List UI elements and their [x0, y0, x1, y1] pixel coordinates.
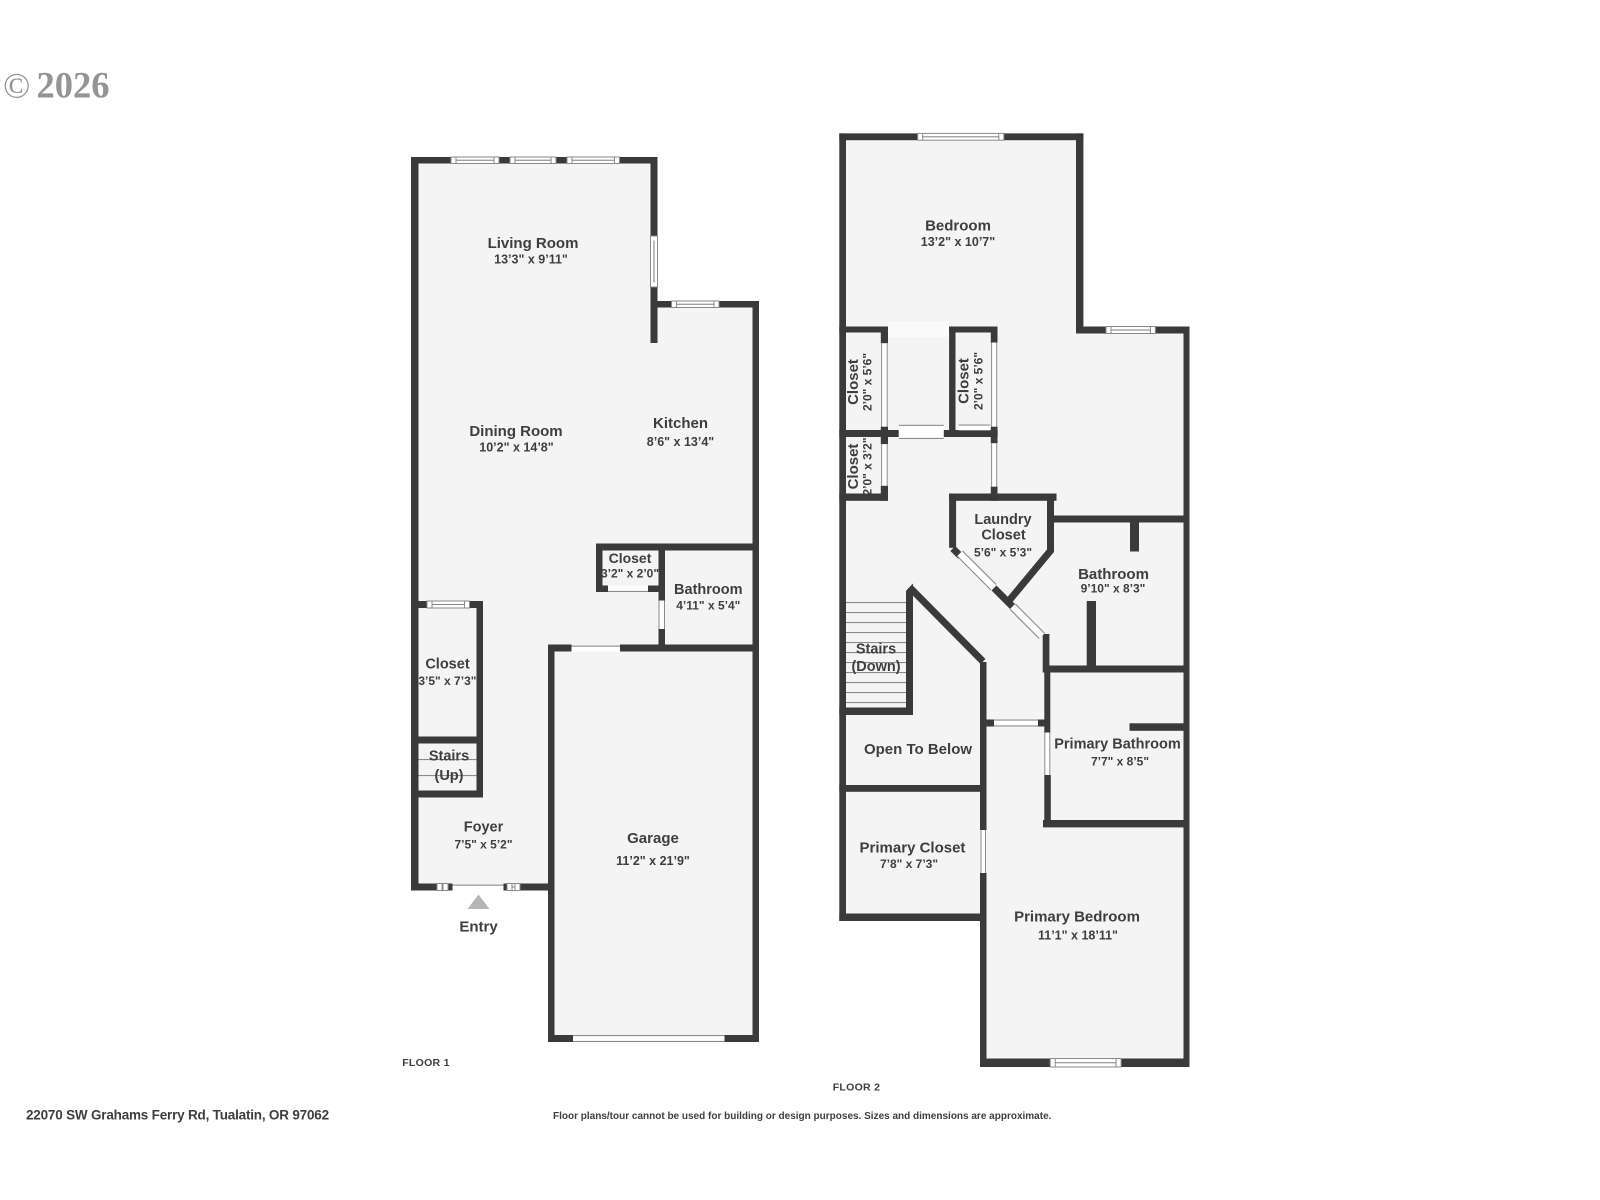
svg-text:11’1" x 18’11": 11’1" x 18’11" [1038, 929, 1118, 943]
svg-text:2’0" x 5’6": 2’0" x 5’6" [972, 352, 986, 410]
svg-text:Kitchen: Kitchen [653, 415, 708, 432]
svg-text:Bathroom: Bathroom [1078, 566, 1149, 583]
svg-text:3’2" x 2’0": 3’2" x 2’0" [601, 567, 659, 581]
svg-text:FLOOR 1: FLOOR 1 [402, 1057, 450, 1069]
svg-text:Foyer: Foyer [464, 820, 504, 836]
svg-text:Open To Below: Open To Below [864, 741, 972, 758]
svg-text:(Down): (Down) [851, 659, 900, 675]
svg-text:(Up): (Up) [435, 768, 464, 784]
svg-text:Closet: Closet [425, 657, 469, 673]
svg-text:8’6" x 13’4": 8’6" x 13’4" [647, 435, 715, 449]
svg-text:Floor plans/tour cannot be use: Floor plans/tour cannot be used for buil… [553, 1111, 1052, 1122]
svg-text:Bedroom: Bedroom [925, 218, 991, 235]
svg-text:2026: 2026 [37, 65, 110, 106]
svg-text:3’5" x 7’3": 3’5" x 7’3" [418, 674, 476, 688]
svg-text:FLOOR 2: FLOOR 2 [833, 1082, 881, 1094]
svg-text:13’2" x 10’7": 13’2" x 10’7" [921, 235, 995, 249]
svg-text:Stairs: Stairs [429, 749, 469, 765]
svg-text:Living Room: Living Room [488, 235, 579, 252]
svg-text:9’10" x 8’3": 9’10" x 8’3" [1081, 582, 1146, 596]
svg-text:11’2" x 21’9": 11’2" x 21’9" [616, 854, 690, 868]
svg-text:5’6" x 5’3": 5’6" x 5’3" [974, 546, 1032, 560]
svg-text:7’7" x 8’5": 7’7" x 8’5" [1091, 755, 1149, 769]
svg-text:7’8" x 7’3": 7’8" x 7’3" [880, 857, 938, 871]
svg-text:Primary Closet: Primary Closet [860, 840, 966, 857]
svg-text:Stairs: Stairs [856, 642, 896, 658]
svg-text:2’0" x 5’6": 2’0" x 5’6" [861, 353, 875, 411]
svg-text:2’0" x 3’2": 2’0" x 3’2" [861, 437, 875, 495]
svg-text:Primary Bathroom: Primary Bathroom [1054, 737, 1181, 753]
svg-text:Entry: Entry [459, 919, 498, 936]
svg-text:Closet: Closet [845, 444, 862, 490]
svg-text:13’3" x 9’11": 13’3" x 9’11" [494, 253, 568, 267]
svg-text:10’2" x 14’8": 10’2" x 14’8" [479, 441, 553, 455]
svg-text:Primary Bedroom: Primary Bedroom [1014, 909, 1140, 926]
svg-text:Closet: Closet [609, 550, 652, 566]
svg-text:4’11" x 5’4": 4’11" x 5’4" [676, 599, 740, 613]
svg-text:©: © [3, 66, 30, 106]
svg-text:Closet: Closet [956, 358, 973, 404]
svg-text:Dining Room: Dining Room [469, 423, 562, 440]
svg-text:Closet: Closet [845, 359, 862, 405]
svg-text:Laundry: Laundry [974, 512, 1031, 528]
svg-text:Bathroom: Bathroom [674, 582, 742, 598]
svg-text:22070 SW Grahams Ferry Rd, Tua: 22070 SW Grahams Ferry Rd, Tualatin, OR … [26, 1108, 329, 1123]
svg-text:7’5" x 5’2": 7’5" x 5’2" [454, 838, 512, 852]
svg-text:Closet: Closet [981, 528, 1025, 544]
svg-text:Garage: Garage [627, 830, 679, 847]
